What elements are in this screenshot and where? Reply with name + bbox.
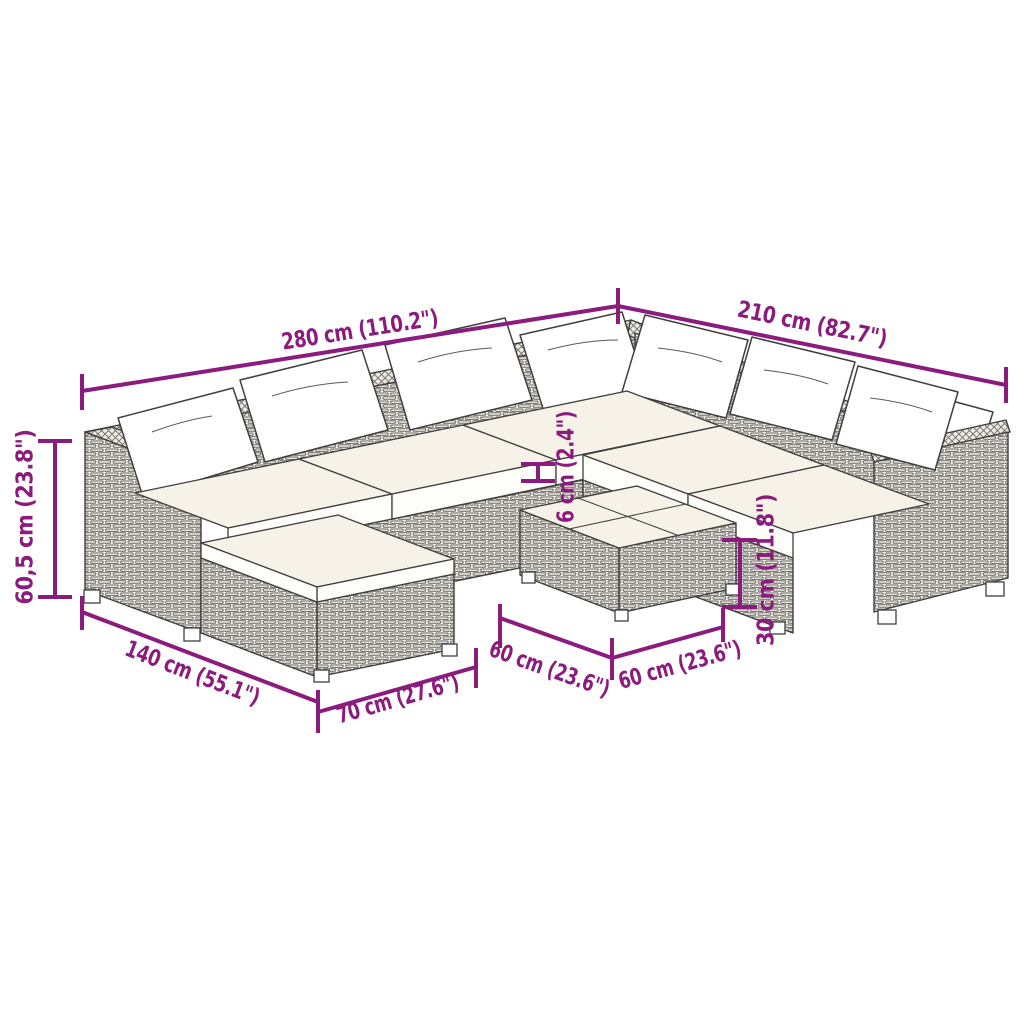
dim-seat-height: 60,5 cm (23.8") (13, 430, 73, 605)
footstool-foot (442, 644, 457, 656)
product-dimension-diagram: 280 cm (110.2") 210 cm (82.7") 60,5 cm (… (0, 0, 1024, 1024)
dim-table-depth: 60 cm (23.6") (612, 608, 744, 695)
dim-table-depth-label: 60 cm (23.6") (616, 636, 744, 695)
sofa-foot (878, 610, 896, 624)
table-foot (522, 572, 535, 583)
dim-table-width: 60 cm (23.6") (485, 604, 612, 703)
dim-seat-height-label: 60,5 cm (23.8") (13, 430, 39, 605)
footstool-foot (314, 670, 329, 682)
dim-table-width-label: 60 cm (23.6") (485, 636, 612, 703)
sofa-foot (84, 590, 100, 603)
diagram-canvas: 280 cm (110.2") 210 cm (82.7") 60,5 cm (… (0, 0, 1024, 1024)
sofa-foot (986, 582, 1004, 596)
dim-cushion-thickness-label: 6 cm (2.4") (554, 411, 580, 523)
sofa-foot (184, 628, 200, 641)
dim-footstool-width-label: 70 cm (27.6") (334, 670, 462, 730)
table-foot (726, 584, 739, 595)
table-foot (615, 610, 628, 621)
dim-table-height-label: 30 cm (11.8") (754, 494, 780, 646)
